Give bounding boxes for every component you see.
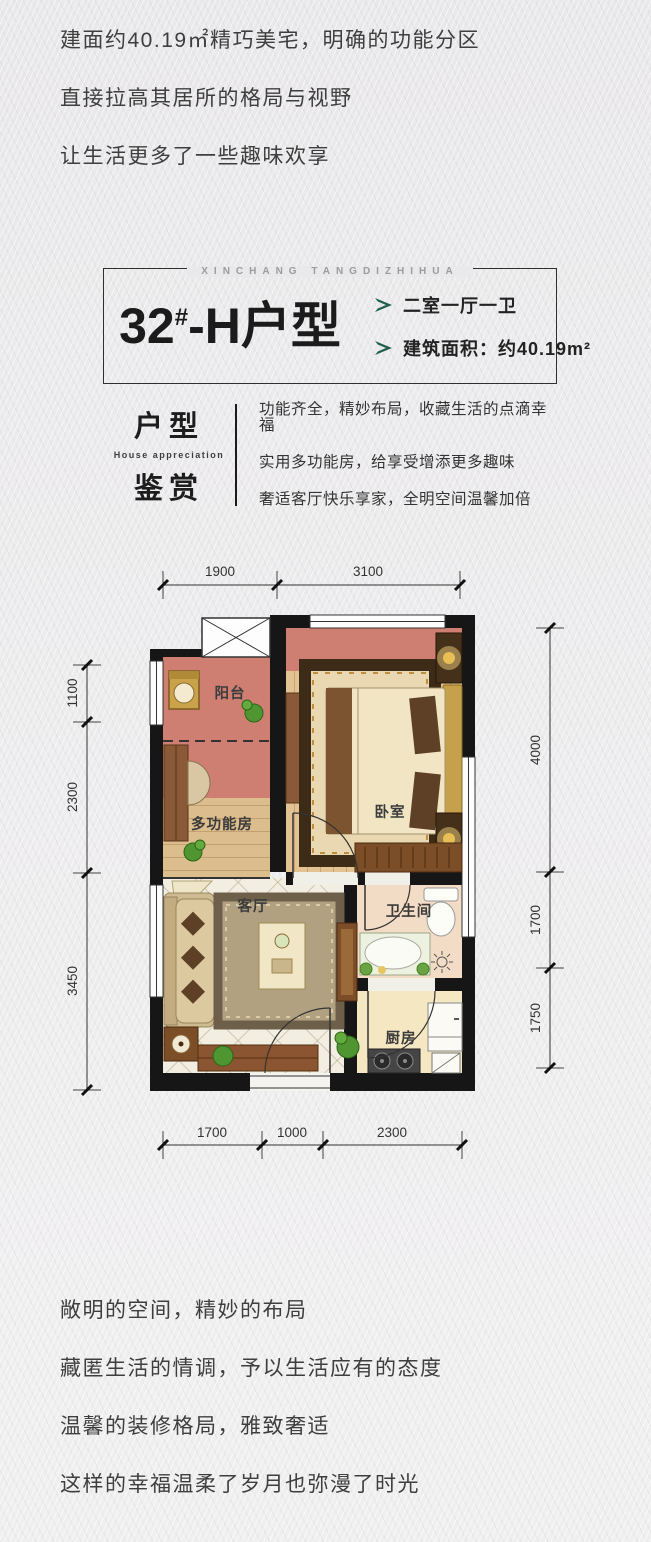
dim-right-1: 4000 xyxy=(528,735,543,765)
dim-left-2: 2300 xyxy=(65,782,80,812)
floorplan-drawing: 阳台 多功能房 卧室 客厅 卫生间 厨房 1900 3100 1700 1000… xyxy=(60,545,600,1185)
dim-right-2: 1700 xyxy=(528,905,543,935)
unit-name: 32#-H户型 xyxy=(104,301,356,351)
appreciation-line-3: 奢适客厅快乐享家，全明空间温馨加倍 xyxy=(259,492,555,508)
appreciation-en: House appreciation xyxy=(103,450,235,460)
dim-left-1: 1100 xyxy=(65,678,80,707)
intro-line-2: 直接拉高其居所的格局与视野 xyxy=(60,88,480,110)
appreciation-zh-bottom: 鉴赏 xyxy=(103,465,235,507)
plant xyxy=(213,1046,233,1066)
floorplan: 阳台 多功能房 卧室 客厅 卫生间 厨房 1900 3100 1700 1000… xyxy=(60,545,600,1190)
unit-name-suffix: -H户型 xyxy=(188,298,341,354)
appreciation-line-1: 功能齐全，精妙布局，收藏生活的点滴幸福 xyxy=(259,402,555,434)
sink xyxy=(432,1053,460,1073)
window-balcony xyxy=(150,661,163,725)
brand-text: XINCHANG TANGDIZHIHUA xyxy=(187,266,472,277)
unit-title-block: XINCHANG TANGDIZHIHUA 32#-H户型 二室一厅一卫 建筑面… xyxy=(103,268,557,384)
appreciation-title: 户型 House appreciation 鉴赏 xyxy=(103,403,235,507)
room-label-bath: 卫生间 xyxy=(386,902,433,920)
wall-balcony-top xyxy=(150,649,202,657)
room-label-living: 客厅 xyxy=(237,897,269,915)
shaft xyxy=(202,618,270,657)
dim-bottom-3: 2300 xyxy=(377,1125,407,1140)
brand-banner: XINCHANG TANGDIZHIHUA xyxy=(104,261,556,279)
dim-top-2: 3100 xyxy=(353,564,383,579)
opening-kitchen-door xyxy=(368,978,435,991)
window-right xyxy=(462,757,475,937)
unit-number-sup: # xyxy=(175,304,188,331)
nightstand xyxy=(436,633,462,683)
coffee-table xyxy=(259,923,305,989)
room-label-bedroom: 卧室 xyxy=(375,803,406,821)
dim-left-3: 3450 xyxy=(65,966,80,996)
room-label-balcony: 阳台 xyxy=(215,684,246,702)
room-label-multi: 多功能房 xyxy=(191,815,253,833)
unit-title-inner: 32#-H户型 二室一厅一卫 建筑面积：约40.19m² xyxy=(104,269,556,383)
window-bedroom-top xyxy=(310,615,445,628)
unit-number: 32 xyxy=(119,298,175,354)
tall-cabinet xyxy=(337,923,357,1001)
window-living xyxy=(150,885,163,997)
wardrobe xyxy=(164,745,188,841)
wall-divider-left xyxy=(270,618,286,872)
appreciation-block: 户型 House appreciation 鉴赏 功能齐全，精妙布局，收藏生活的… xyxy=(103,402,555,508)
opening-bath-door xyxy=(365,872,410,885)
intro-line-3: 让生活更多了一些趣味欢享 xyxy=(60,146,480,168)
outro-copy: 敞明的空间，精妙的布局 藏匿生活的情调，予以生活应有的态度 温馨的装修格局，雅致… xyxy=(60,1300,443,1532)
outro-line-1: 敞明的空间，精妙的布局 xyxy=(60,1300,443,1322)
tv-console xyxy=(198,1045,318,1071)
intro-copy: 建面约40.19㎡精巧美宅，明确的功能分区 直接拉高其居所的格局与视野 让生活更… xyxy=(60,30,480,204)
opening-bedroom-door xyxy=(293,872,358,885)
room-label-kitchen: 厨房 xyxy=(386,1029,417,1047)
bathtub xyxy=(360,933,430,975)
outro-line-3: 温馨的装修格局，雅致奢适 xyxy=(60,1416,443,1438)
spec-rooms-text: 二室一厅一卫 xyxy=(403,292,517,318)
appreciation-line-2: 实用多功能房，给享受增添更多趣味 xyxy=(259,455,555,471)
washing-machine xyxy=(169,671,199,709)
dim-top-1: 1900 xyxy=(205,564,235,579)
intro-line-1: 建面约40.19㎡精巧美宅，明确的功能分区 xyxy=(60,30,480,52)
unit-specs: 二室一厅一卫 建筑面积：约40.19m² xyxy=(356,292,591,361)
dim-bottom-2: 1000 xyxy=(277,1125,307,1140)
appreciation-lines: 功能齐全，精妙布局，收藏生活的点滴幸福 实用多功能房，给享受增添更多趣味 奢适客… xyxy=(237,402,555,508)
spec-rooms: 二室一厅一卫 xyxy=(374,292,591,318)
real-estate-poster: 建面约40.19㎡精巧美宅，明确的功能分区 直接拉高其居所的格局与视野 让生活更… xyxy=(0,0,651,1542)
outro-line-2: 藏匿生活的情调，予以生活应有的态度 xyxy=(60,1358,443,1380)
side-table xyxy=(164,1027,198,1061)
blanket-fold xyxy=(326,688,352,834)
dim-right-3: 1750 xyxy=(528,1003,543,1033)
green-arrow-icon xyxy=(374,297,393,313)
spec-area-text: 建筑面积：约40.19m² xyxy=(403,335,591,361)
appreciation-zh-top: 户型 xyxy=(103,403,235,445)
green-arrow-icon xyxy=(374,340,393,356)
fridge xyxy=(428,1003,462,1051)
sofa xyxy=(164,893,214,1027)
dim-bottom-1: 1700 xyxy=(197,1125,227,1140)
dresser xyxy=(355,843,462,872)
spec-area: 建筑面积：约40.19m² xyxy=(374,335,591,361)
outro-line-4: 这样的幸福温柔了岁月也弥漫了时光 xyxy=(60,1474,443,1496)
